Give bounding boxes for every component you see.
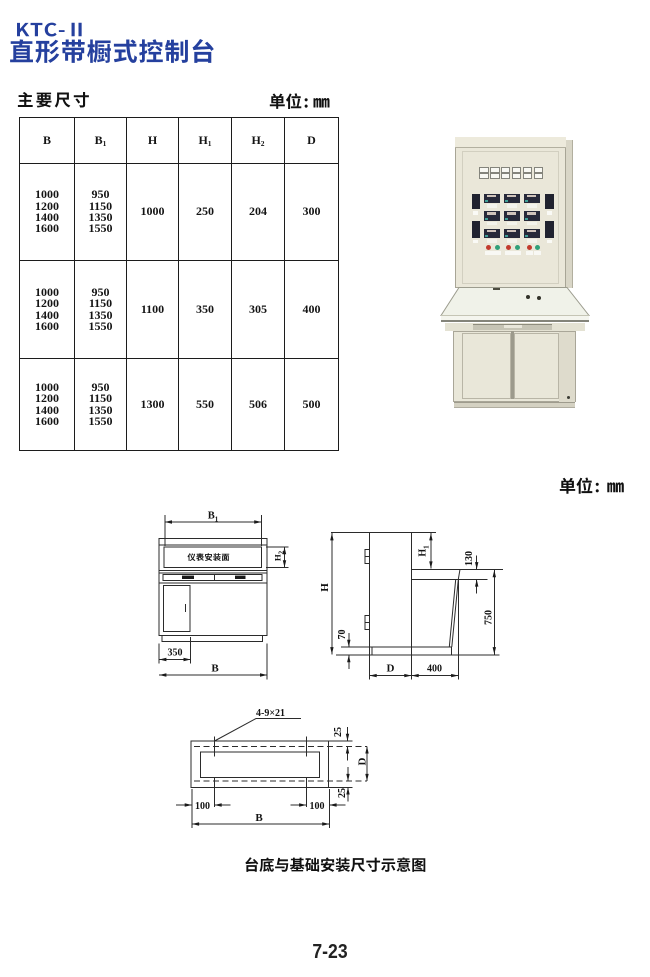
svg-text:B: B [211, 663, 219, 675]
svg-text:750: 750 [484, 610, 495, 625]
svg-text:400: 400 [427, 664, 442, 675]
svg-text:100: 100 [310, 801, 325, 812]
svg-text:D: D [387, 663, 395, 675]
svg-text:130: 130 [464, 551, 475, 566]
svg-text:B: B [255, 812, 263, 824]
svg-text:25: 25 [337, 788, 348, 798]
svg-text:D: D [357, 757, 369, 765]
svg-text:25: 25 [333, 727, 344, 737]
svg-text:100: 100 [195, 801, 210, 812]
svg-text:H2: H2 [273, 550, 286, 561]
svg-text:4-9×21: 4-9×21 [256, 708, 285, 719]
svg-text:B1: B1 [208, 511, 219, 524]
svg-text:H1: H1 [418, 545, 431, 557]
svg-text:70: 70 [337, 630, 348, 640]
svg-text:H: H [319, 583, 331, 592]
svg-text:350: 350 [168, 648, 183, 659]
